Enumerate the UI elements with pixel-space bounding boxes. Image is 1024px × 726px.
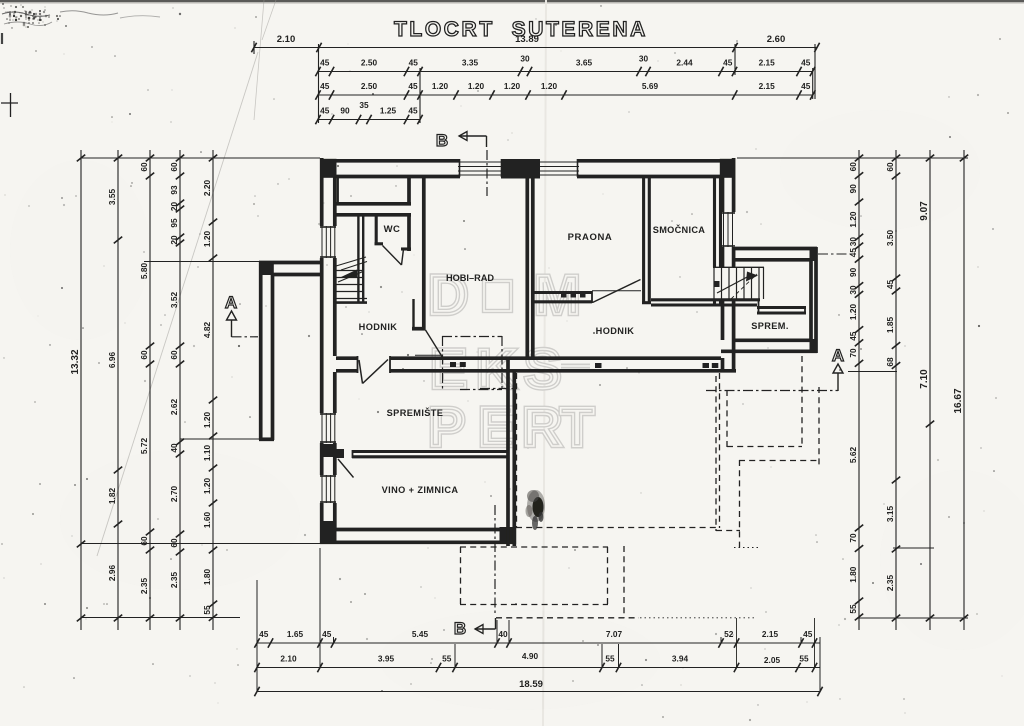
svg-text:PRAONA: PRAONA (568, 232, 613, 243)
svg-text:4.90: 4.90 (522, 651, 539, 661)
svg-text:40: 40 (169, 443, 179, 453)
svg-text:2.96: 2.96 (107, 565, 117, 582)
svg-text:1.80: 1.80 (202, 569, 212, 586)
svg-text:45: 45 (803, 629, 813, 639)
svg-text:45: 45 (885, 280, 895, 290)
svg-text:60: 60 (139, 350, 149, 360)
svg-text:HODNIK: HODNIK (596, 326, 635, 336)
svg-text:60: 60 (848, 162, 858, 172)
svg-text:13.89: 13.89 (515, 34, 539, 45)
svg-text:3.65: 3.65 (576, 58, 593, 68)
svg-text:1.85: 1.85 (885, 317, 895, 334)
svg-text:3.50: 3.50 (885, 230, 895, 247)
svg-text:45: 45 (408, 106, 418, 116)
svg-text:90: 90 (848, 267, 858, 277)
svg-text:2.10: 2.10 (280, 654, 297, 664)
svg-text:2.15: 2.15 (762, 629, 779, 639)
svg-text:45: 45 (320, 81, 330, 91)
svg-text:18.59: 18.59 (519, 679, 543, 690)
svg-text:20: 20 (169, 202, 179, 212)
svg-text:1.82: 1.82 (107, 488, 117, 505)
svg-text:52: 52 (724, 629, 734, 639)
svg-text:2.15: 2.15 (759, 58, 776, 68)
svg-text:2.15: 2.15 (759, 81, 776, 91)
svg-text:2.35: 2.35 (885, 575, 895, 592)
svg-text:5.80: 5.80 (139, 263, 149, 280)
svg-text:K: K (476, 337, 516, 400)
svg-text:45: 45 (322, 629, 332, 639)
svg-text:60: 60 (139, 162, 149, 172)
svg-text:3.35: 3.35 (462, 58, 479, 68)
svg-text:1.20: 1.20 (468, 81, 485, 91)
svg-text:45: 45 (848, 331, 858, 341)
svg-text:A: A (225, 293, 237, 312)
svg-text:30: 30 (848, 285, 858, 295)
svg-text:2.44: 2.44 (676, 58, 693, 68)
svg-text:1.25: 1.25 (380, 106, 397, 116)
svg-text:3.94: 3.94 (672, 654, 689, 664)
svg-text:45: 45 (259, 629, 269, 639)
svg-text:VINO + ZIMNICA: VINO + ZIMNICA (382, 485, 459, 495)
svg-text:R: R (522, 395, 562, 458)
svg-text:2.20: 2.20 (202, 180, 212, 197)
svg-text:SPREMIŠTE: SPREMIŠTE (387, 407, 444, 418)
svg-text:55: 55 (202, 605, 212, 615)
svg-text:2.70: 2.70 (169, 486, 179, 503)
svg-text:20: 20 (169, 235, 179, 245)
svg-text:1.20: 1.20 (202, 231, 212, 248)
svg-text:7.10: 7.10 (919, 369, 930, 389)
svg-text:5.62: 5.62 (848, 447, 858, 464)
svg-text:SMOČNICA: SMOČNICA (653, 224, 705, 235)
svg-text:2.35: 2.35 (139, 578, 149, 595)
svg-text:45: 45 (409, 58, 419, 68)
svg-text:45: 45 (408, 81, 418, 91)
svg-text:30: 30 (639, 54, 649, 64)
svg-text:45: 45 (848, 248, 858, 258)
svg-text:5.72: 5.72 (139, 438, 149, 455)
svg-text:40: 40 (498, 629, 508, 639)
svg-text:60: 60 (169, 350, 179, 360)
svg-text:1.20: 1.20 (848, 304, 858, 321)
svg-text:3.55: 3.55 (107, 189, 117, 206)
svg-text:60: 60 (885, 162, 895, 172)
svg-text:1.20: 1.20 (432, 81, 449, 91)
svg-text:45: 45 (320, 58, 330, 68)
svg-text:1.60: 1.60 (202, 512, 212, 529)
svg-text:B: B (436, 131, 448, 150)
svg-text:4.82: 4.82 (202, 322, 212, 339)
svg-text:SPREM.: SPREM. (751, 321, 789, 331)
svg-text:7.07: 7.07 (606, 629, 623, 639)
svg-text:2.05: 2.05 (764, 655, 781, 665)
svg-text:90: 90 (848, 184, 858, 194)
svg-text:93: 93 (169, 185, 179, 195)
svg-text:55: 55 (605, 654, 615, 664)
svg-text:1.20: 1.20 (541, 81, 558, 91)
svg-text:3.15: 3.15 (885, 506, 895, 523)
svg-text:1.10: 1.10 (202, 445, 212, 462)
svg-text:2.35: 2.35 (169, 572, 179, 589)
svg-text:60: 60 (169, 538, 179, 548)
svg-text:2.10: 2.10 (277, 34, 296, 45)
svg-text:3.95: 3.95 (378, 654, 395, 664)
svg-text:9.07: 9.07 (919, 201, 930, 221)
svg-text:5.45: 5.45 (412, 629, 429, 639)
svg-text:60: 60 (169, 162, 179, 172)
svg-text:1.20: 1.20 (202, 478, 212, 495)
svg-text:S: S (524, 337, 561, 400)
svg-text:2.50: 2.50 (361, 58, 378, 68)
svg-text:B: B (454, 619, 466, 638)
svg-text:55: 55 (848, 604, 858, 614)
svg-text:90: 90 (340, 106, 350, 116)
svg-text:T: T (560, 395, 594, 458)
svg-text:1.20: 1.20 (202, 412, 212, 429)
svg-text:A: A (832, 346, 844, 365)
svg-text:45: 45 (801, 81, 811, 91)
svg-text:70: 70 (848, 533, 858, 543)
svg-text:45: 45 (801, 58, 811, 68)
svg-text:1.20: 1.20 (848, 211, 858, 228)
svg-text:1.65: 1.65 (287, 629, 304, 639)
svg-text:30: 30 (848, 237, 858, 247)
svg-text:2.62: 2.62 (169, 399, 179, 416)
svg-text:45: 45 (723, 58, 733, 68)
svg-text:HOBI–RAD: HOBI–RAD (446, 273, 494, 283)
svg-text:2.50: 2.50 (361, 81, 378, 91)
svg-text:13.32: 13.32 (70, 349, 81, 374)
svg-text:45: 45 (320, 106, 330, 116)
svg-text:WC: WC (384, 224, 401, 235)
svg-text:P: P (428, 395, 465, 458)
svg-text:70: 70 (848, 348, 858, 358)
svg-text:55: 55 (442, 654, 452, 664)
svg-text:HODNIK: HODNIK (359, 322, 398, 332)
svg-text:30: 30 (520, 54, 530, 64)
svg-text:1.80: 1.80 (848, 566, 858, 583)
svg-text:5.69: 5.69 (642, 81, 659, 91)
svg-text:3.52: 3.52 (169, 292, 179, 309)
svg-text:6.96: 6.96 (107, 352, 117, 369)
svg-text:2.60: 2.60 (767, 34, 786, 45)
svg-text:60: 60 (139, 536, 149, 546)
svg-text:35: 35 (359, 100, 369, 110)
svg-text:95: 95 (169, 218, 179, 228)
svg-text:55: 55 (799, 654, 809, 664)
svg-text:16.67: 16.67 (953, 388, 964, 413)
svg-text:68: 68 (885, 357, 895, 367)
svg-text:1.20: 1.20 (504, 81, 521, 91)
